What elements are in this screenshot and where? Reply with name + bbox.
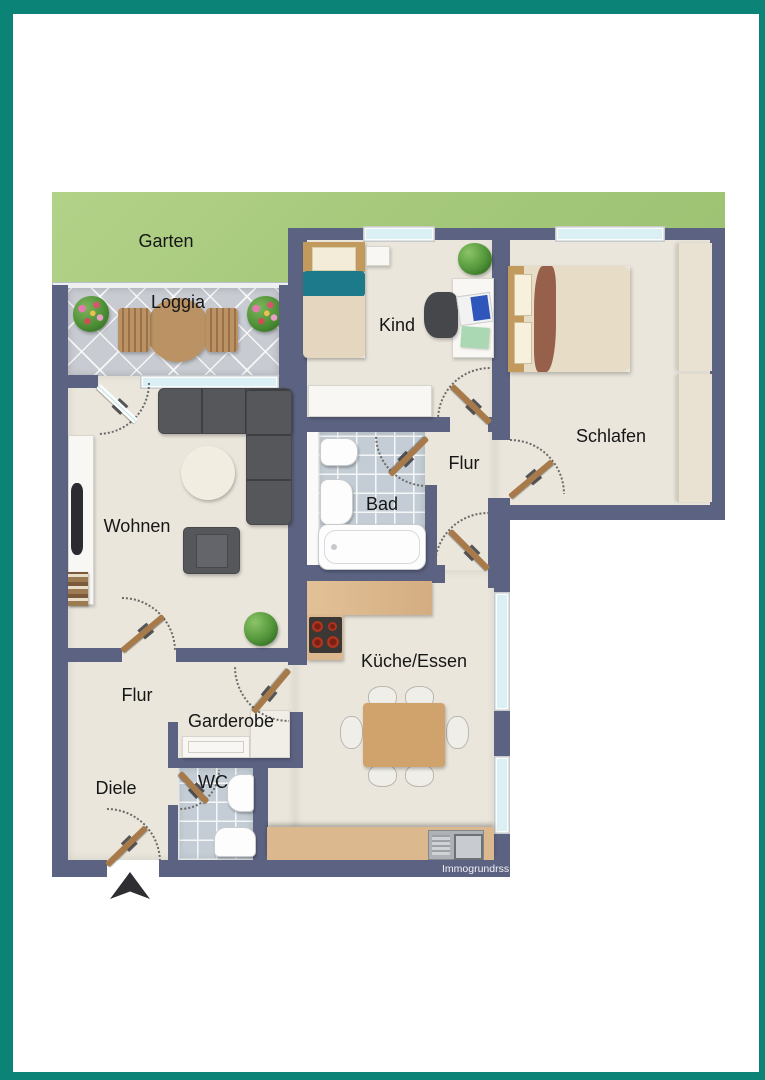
room-label-schlafen: Schlafen — [576, 426, 646, 447]
bench-inner-line — [188, 741, 244, 753]
room-label-kind: Kind — [379, 315, 415, 336]
burner — [312, 621, 323, 632]
schlafen-blanket — [534, 266, 556, 372]
window-schlafen — [555, 226, 665, 242]
schlafen-bed — [508, 266, 630, 372]
schlafen-wardrobe-bottom — [677, 374, 712, 502]
sink-drainboard — [432, 835, 450, 855]
bathtub-inner — [324, 530, 420, 564]
wall-wohnen-flur-right — [176, 648, 290, 662]
kind-bed-blanket — [303, 271, 365, 297]
tv-screen — [71, 483, 83, 555]
burner — [328, 622, 337, 631]
burner — [327, 636, 339, 648]
burner — [312, 637, 323, 648]
watermark-text: Immogrundrss — [442, 863, 509, 875]
wohnen-plant — [244, 612, 278, 646]
window-kind — [363, 226, 435, 242]
kind-desk-chair — [424, 292, 458, 338]
wall-wc-left — [168, 805, 178, 860]
wall-garderobe-bottom — [168, 758, 303, 768]
loggia-chair-left — [118, 308, 150, 352]
bad-toilet — [320, 438, 358, 466]
window-glass — [143, 378, 276, 386]
kind-plant — [458, 243, 492, 275]
room-label-loggia: Loggia — [151, 292, 205, 313]
dining-chair-bottom-right — [405, 764, 434, 787]
book-shelf — [68, 572, 88, 606]
window-kueche-lower — [494, 756, 510, 834]
dining-chair-right — [446, 716, 469, 749]
kitchen-sink — [428, 830, 484, 860]
kind-laptop-screen — [470, 295, 490, 321]
room-label-garten: Garten — [138, 231, 193, 252]
dining-chair-left — [340, 716, 363, 749]
armchair-seat — [196, 534, 228, 568]
room-label-wohnen: Wohnen — [104, 516, 171, 537]
wc-toilet — [214, 827, 256, 857]
window-kueche-upper — [494, 592, 510, 711]
wall-corner-flur-kueche — [488, 498, 510, 588]
kind-nightstand — [366, 246, 390, 266]
wall-wohnen-top-stub — [68, 375, 98, 388]
sofa-vertical — [246, 388, 292, 525]
bathtub-drain — [331, 544, 337, 550]
room-label-flur-top: Flur — [449, 453, 480, 474]
window-wohnen-loggia — [140, 375, 279, 389]
sink-basin — [454, 834, 483, 860]
wall-schlafen-right — [710, 228, 725, 520]
bad-bathtub — [318, 524, 426, 570]
schlafen-pillow-top — [514, 274, 532, 316]
entrance-arrow — [110, 872, 150, 899]
kind-wardrobe — [308, 385, 432, 417]
wall-kind-bottom-left — [295, 417, 450, 432]
window-glass — [366, 229, 432, 239]
stove — [309, 617, 342, 653]
wall-bottom-left — [52, 860, 107, 877]
room-label-diele: Diele — [95, 778, 136, 799]
room-label-wc: WC — [198, 772, 228, 793]
kind-bed-pillow — [312, 247, 356, 271]
floor-plan: Garten Loggia Kind Schlafen Flur Bad Woh… — [0, 0, 765, 1080]
window-glass — [558, 229, 662, 239]
window-glass — [497, 595, 507, 708]
dining-chair-bottom-left — [368, 764, 397, 787]
wall-left-exterior — [52, 285, 68, 877]
kueche-counter-top — [307, 581, 432, 615]
room-label-bad: Bad — [366, 494, 398, 515]
wall-wohnen-flur-left — [68, 648, 122, 662]
bad-niche — [307, 432, 318, 570]
wall-schlafen-bottom — [510, 505, 725, 520]
garderobe-bench — [182, 736, 250, 758]
schlafen-pillow-bottom — [514, 322, 532, 364]
kind-bed-body — [303, 296, 365, 358]
dining-table — [363, 703, 445, 767]
wall-kueche-right-mid — [494, 710, 510, 757]
wall-garderobe-left — [168, 722, 178, 762]
round-rug — [181, 446, 235, 500]
kind-paper — [460, 326, 489, 349]
window-glass — [497, 759, 507, 831]
wc-sink — [227, 774, 254, 812]
loggia-chair-right — [206, 308, 238, 352]
kind-bed — [303, 242, 365, 358]
schlafen-wardrobe-top — [677, 243, 712, 371]
bad-sink — [320, 479, 353, 525]
room-label-garderobe: Garderobe — [188, 711, 274, 732]
page-background: Garten Loggia Kind Schlafen Flur Bad Woh… — [0, 0, 765, 1080]
room-label-flur-bottom: Flur — [122, 685, 153, 706]
room-label-kueche: Küche/Essen — [361, 651, 467, 672]
